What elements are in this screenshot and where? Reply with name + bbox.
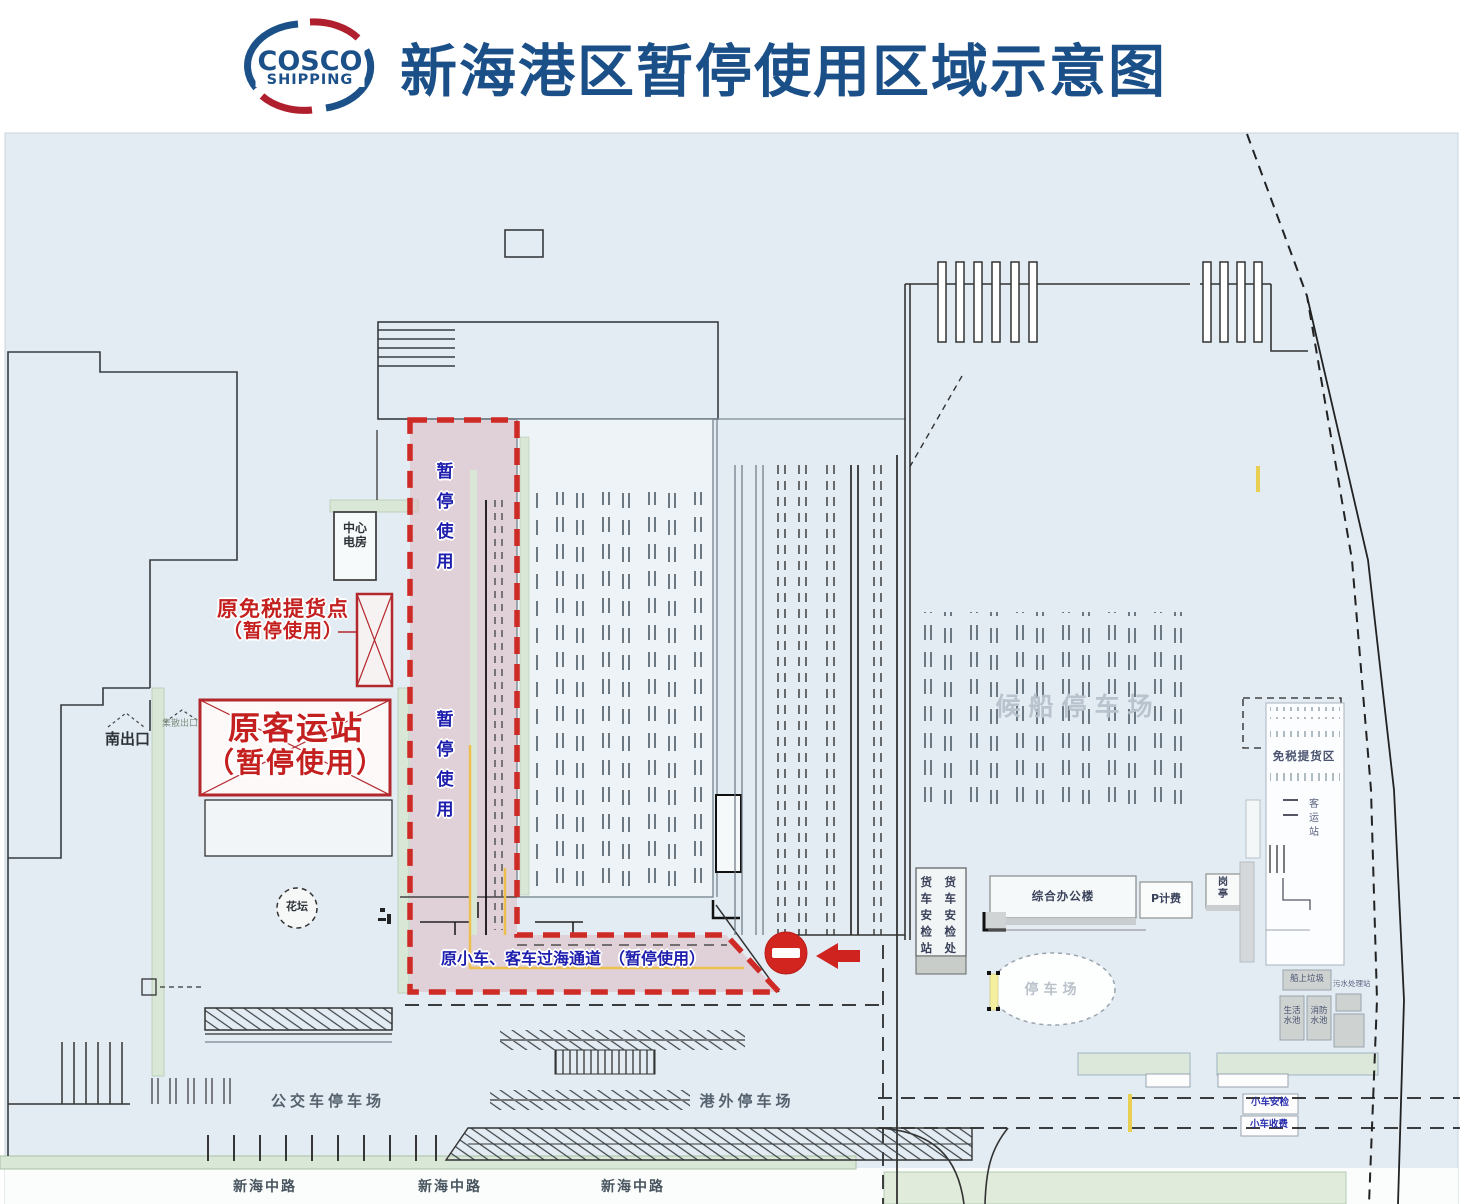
domestic-water-pool-label: 生活水池 [1281,1007,1303,1027]
duty-free-closed-line2: （暂停使用） [217,621,349,643]
truck-security-office-label: 货车安检处 [943,876,956,959]
car-toll-label: 小车收费 [1250,1120,1288,1131]
no-entry-icon [765,932,807,974]
new-passenger-station-label: 客运站 [1306,798,1318,840]
gathering-exit-label: 集散出口 [162,719,198,729]
truck-security-station-label: 货车安检站 [919,876,932,959]
p-toll-label: P计费 [1151,893,1181,906]
waiting-ship-parking-label: 候船停车场 [995,693,1160,722]
fire-water-pool-label: 消防水池 [1308,1007,1330,1027]
suspended-vertical-label-bottom: 暂停使用 [432,710,452,830]
port-map-page: COSCOSHIPPING 新海港区暂停使用区域示意图 [0,0,1462,1204]
office-building-label: 综合办公楼 [1032,890,1095,903]
flower-bed-label: 花坛 [286,901,308,914]
sewage-station-label: 污水处理站 [1333,980,1371,989]
channel-closed-label: 原小车、客车过海通道 （暂停使用） [441,950,705,968]
ship-garbage-label: 船上垃圾 [1290,975,1324,985]
passenger-station-closed-label: 原客运站 （暂停使用） [206,710,386,779]
guard-booth-label: 岗亭 [1215,877,1231,900]
oval-parking-label: 停车场 [1025,982,1082,998]
duty-free-closed-line1: 原免税提货点 [217,597,349,621]
passenger-station-closed-line1: 原客运站 [206,710,386,747]
south-exit-label: 南出口 [105,731,150,748]
road-label-1: 新海中路 [233,1179,297,1195]
road-label-2: 新海中路 [418,1179,482,1195]
passenger-station-closed-line2: （暂停使用） [206,747,386,779]
car-security-check-label: 小车安检 [1251,1098,1289,1109]
central-power-room-label: 中心电房 [340,522,370,550]
bus-parking-label: 公交车停车场 [271,1093,385,1110]
road-label-3: 新海中路 [601,1179,665,1195]
suspended-vertical-label-top: 暂停使用 [432,462,452,582]
outside-port-parking-label: 港外停车场 [699,1093,794,1110]
duty-free-pickup-area-label: 免税提货区 [1273,750,1336,763]
duty-free-closed-label: 原免税提货点 （暂停使用） [217,597,349,643]
